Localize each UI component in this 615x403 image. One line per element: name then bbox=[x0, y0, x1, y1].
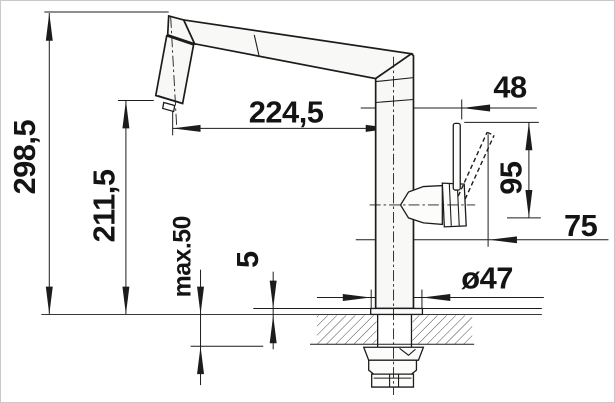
lever-handle bbox=[453, 123, 460, 190]
countertop-section bbox=[41, 314, 542, 344]
counter-hatch-right bbox=[412, 315, 472, 344]
dim-label-lever-offset: 48 bbox=[493, 70, 527, 105]
dim-label-max-thickness: max.50 bbox=[169, 216, 197, 297]
faucet-spout bbox=[184, 20, 412, 79]
dimension-labels: 298,5 211,5 max.50 5 224,5 48 95 75 ø47 bbox=[7, 70, 598, 298]
dim-label-spout-reach: 224,5 bbox=[249, 94, 324, 129]
faucet-column bbox=[376, 54, 414, 309]
faucet-dimension-drawing: 298,5 211,5 max.50 5 224,5 48 95 75 ø47 bbox=[1, 1, 614, 402]
dim-label-handle-reach: 75 bbox=[564, 208, 598, 243]
base-plate bbox=[371, 308, 423, 314]
drawing-sheet: 298,5 211,5 max.50 5 224,5 48 95 75 ø47 bbox=[0, 0, 615, 403]
aerator-nub bbox=[163, 102, 175, 111]
mounting-bracket bbox=[369, 360, 417, 374]
dim-label-outlet-height: 211,5 bbox=[87, 169, 122, 242]
counter-hatch-left bbox=[317, 315, 377, 344]
dim-label-base-diameter: ø47 bbox=[461, 261, 513, 296]
dim-label-total-height: 298,5 bbox=[7, 120, 42, 195]
pullout-spray-head bbox=[156, 36, 194, 104]
dim-label-base-plate-height: 5 bbox=[230, 251, 265, 268]
dim-label-lever-height: 95 bbox=[493, 161, 528, 195]
mounting-nut bbox=[372, 374, 414, 387]
